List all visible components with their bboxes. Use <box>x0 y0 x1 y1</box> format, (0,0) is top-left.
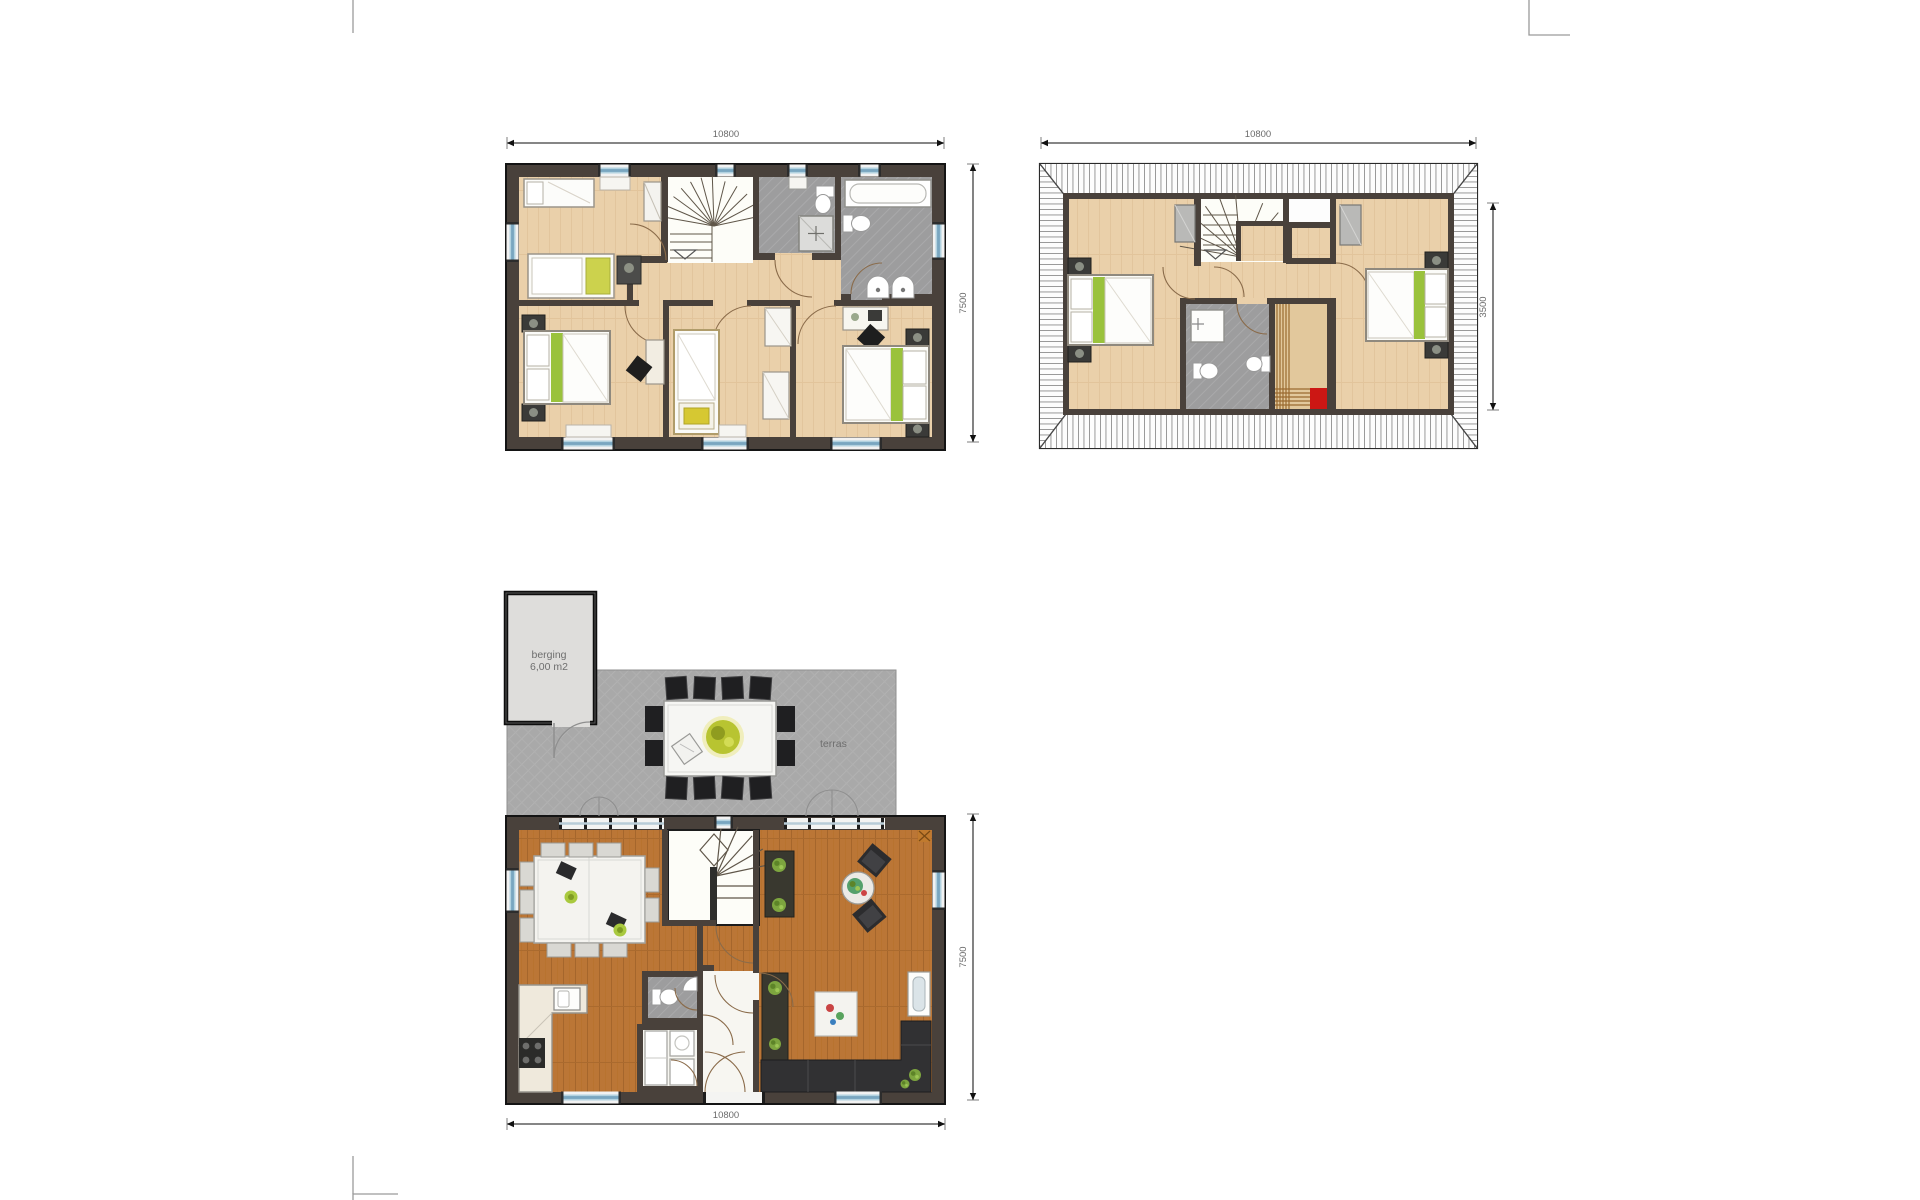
svg-text:3500: 3500 <box>1478 296 1489 317</box>
svg-text:10800: 10800 <box>1245 129 1271 140</box>
svg-text:6,00 m2: 6,00 m2 <box>530 661 568 673</box>
svg-text:7500: 7500 <box>958 292 969 313</box>
svg-text:berging: berging <box>531 649 566 661</box>
svg-text:7500: 7500 <box>958 946 969 967</box>
svg-text:terras: terras <box>820 738 847 750</box>
svg-text:10800: 10800 <box>713 1110 739 1121</box>
svg-text:10800: 10800 <box>713 129 739 140</box>
